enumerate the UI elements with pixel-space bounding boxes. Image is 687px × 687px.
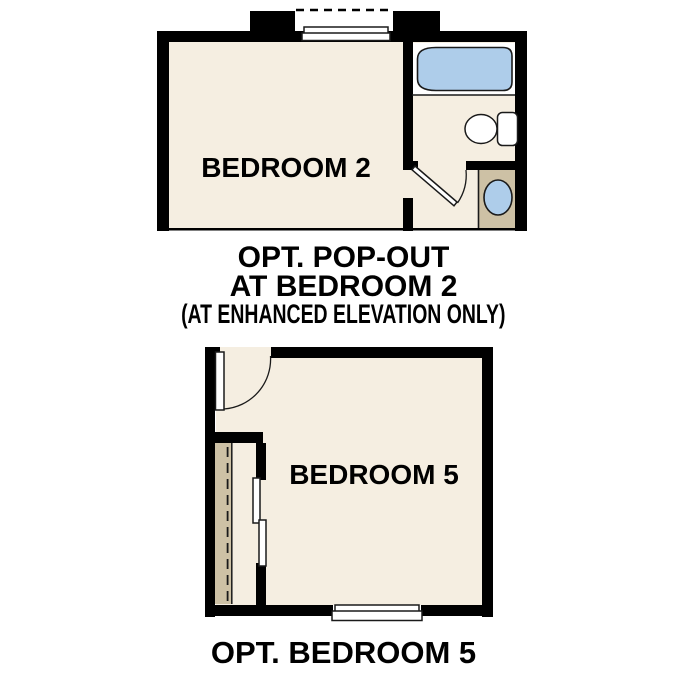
bathtub [418, 48, 513, 91]
plan-top-caption-line1: OPT. POP-OUT [0, 243, 687, 272]
plan-top-caption: OPT. POP-OUT AT BEDROOM 2 (AT ENHANCED E… [0, 243, 687, 328]
doorway-gap [220, 347, 271, 358]
plan-top-caption-line3: (AT ENHANCED ELEVATION ONLY) [0, 301, 687, 328]
plan-bottom-caption: OPT. BEDROOM 5 [0, 638, 687, 668]
bedroom5-window [332, 605, 422, 621]
toilet [465, 113, 518, 146]
plan-top-caption-line2: AT BEDROOM 2 [0, 272, 687, 301]
closet-floor [214, 443, 232, 604]
floor-plan-page: BEDROOM 2 BEDROOM 5 OPT. POP-OUT AT BEDR… [0, 0, 687, 687]
bedroom2-label: BEDROOM 2 [169, 154, 403, 182]
vanity-sink [484, 180, 512, 215]
floor-plan-bedroom2 [157, 9, 527, 231]
floor-plan-drawing [0, 0, 687, 687]
pop-out-window [302, 27, 390, 41]
bedroom5-label: BEDROOM 5 [257, 461, 491, 489]
